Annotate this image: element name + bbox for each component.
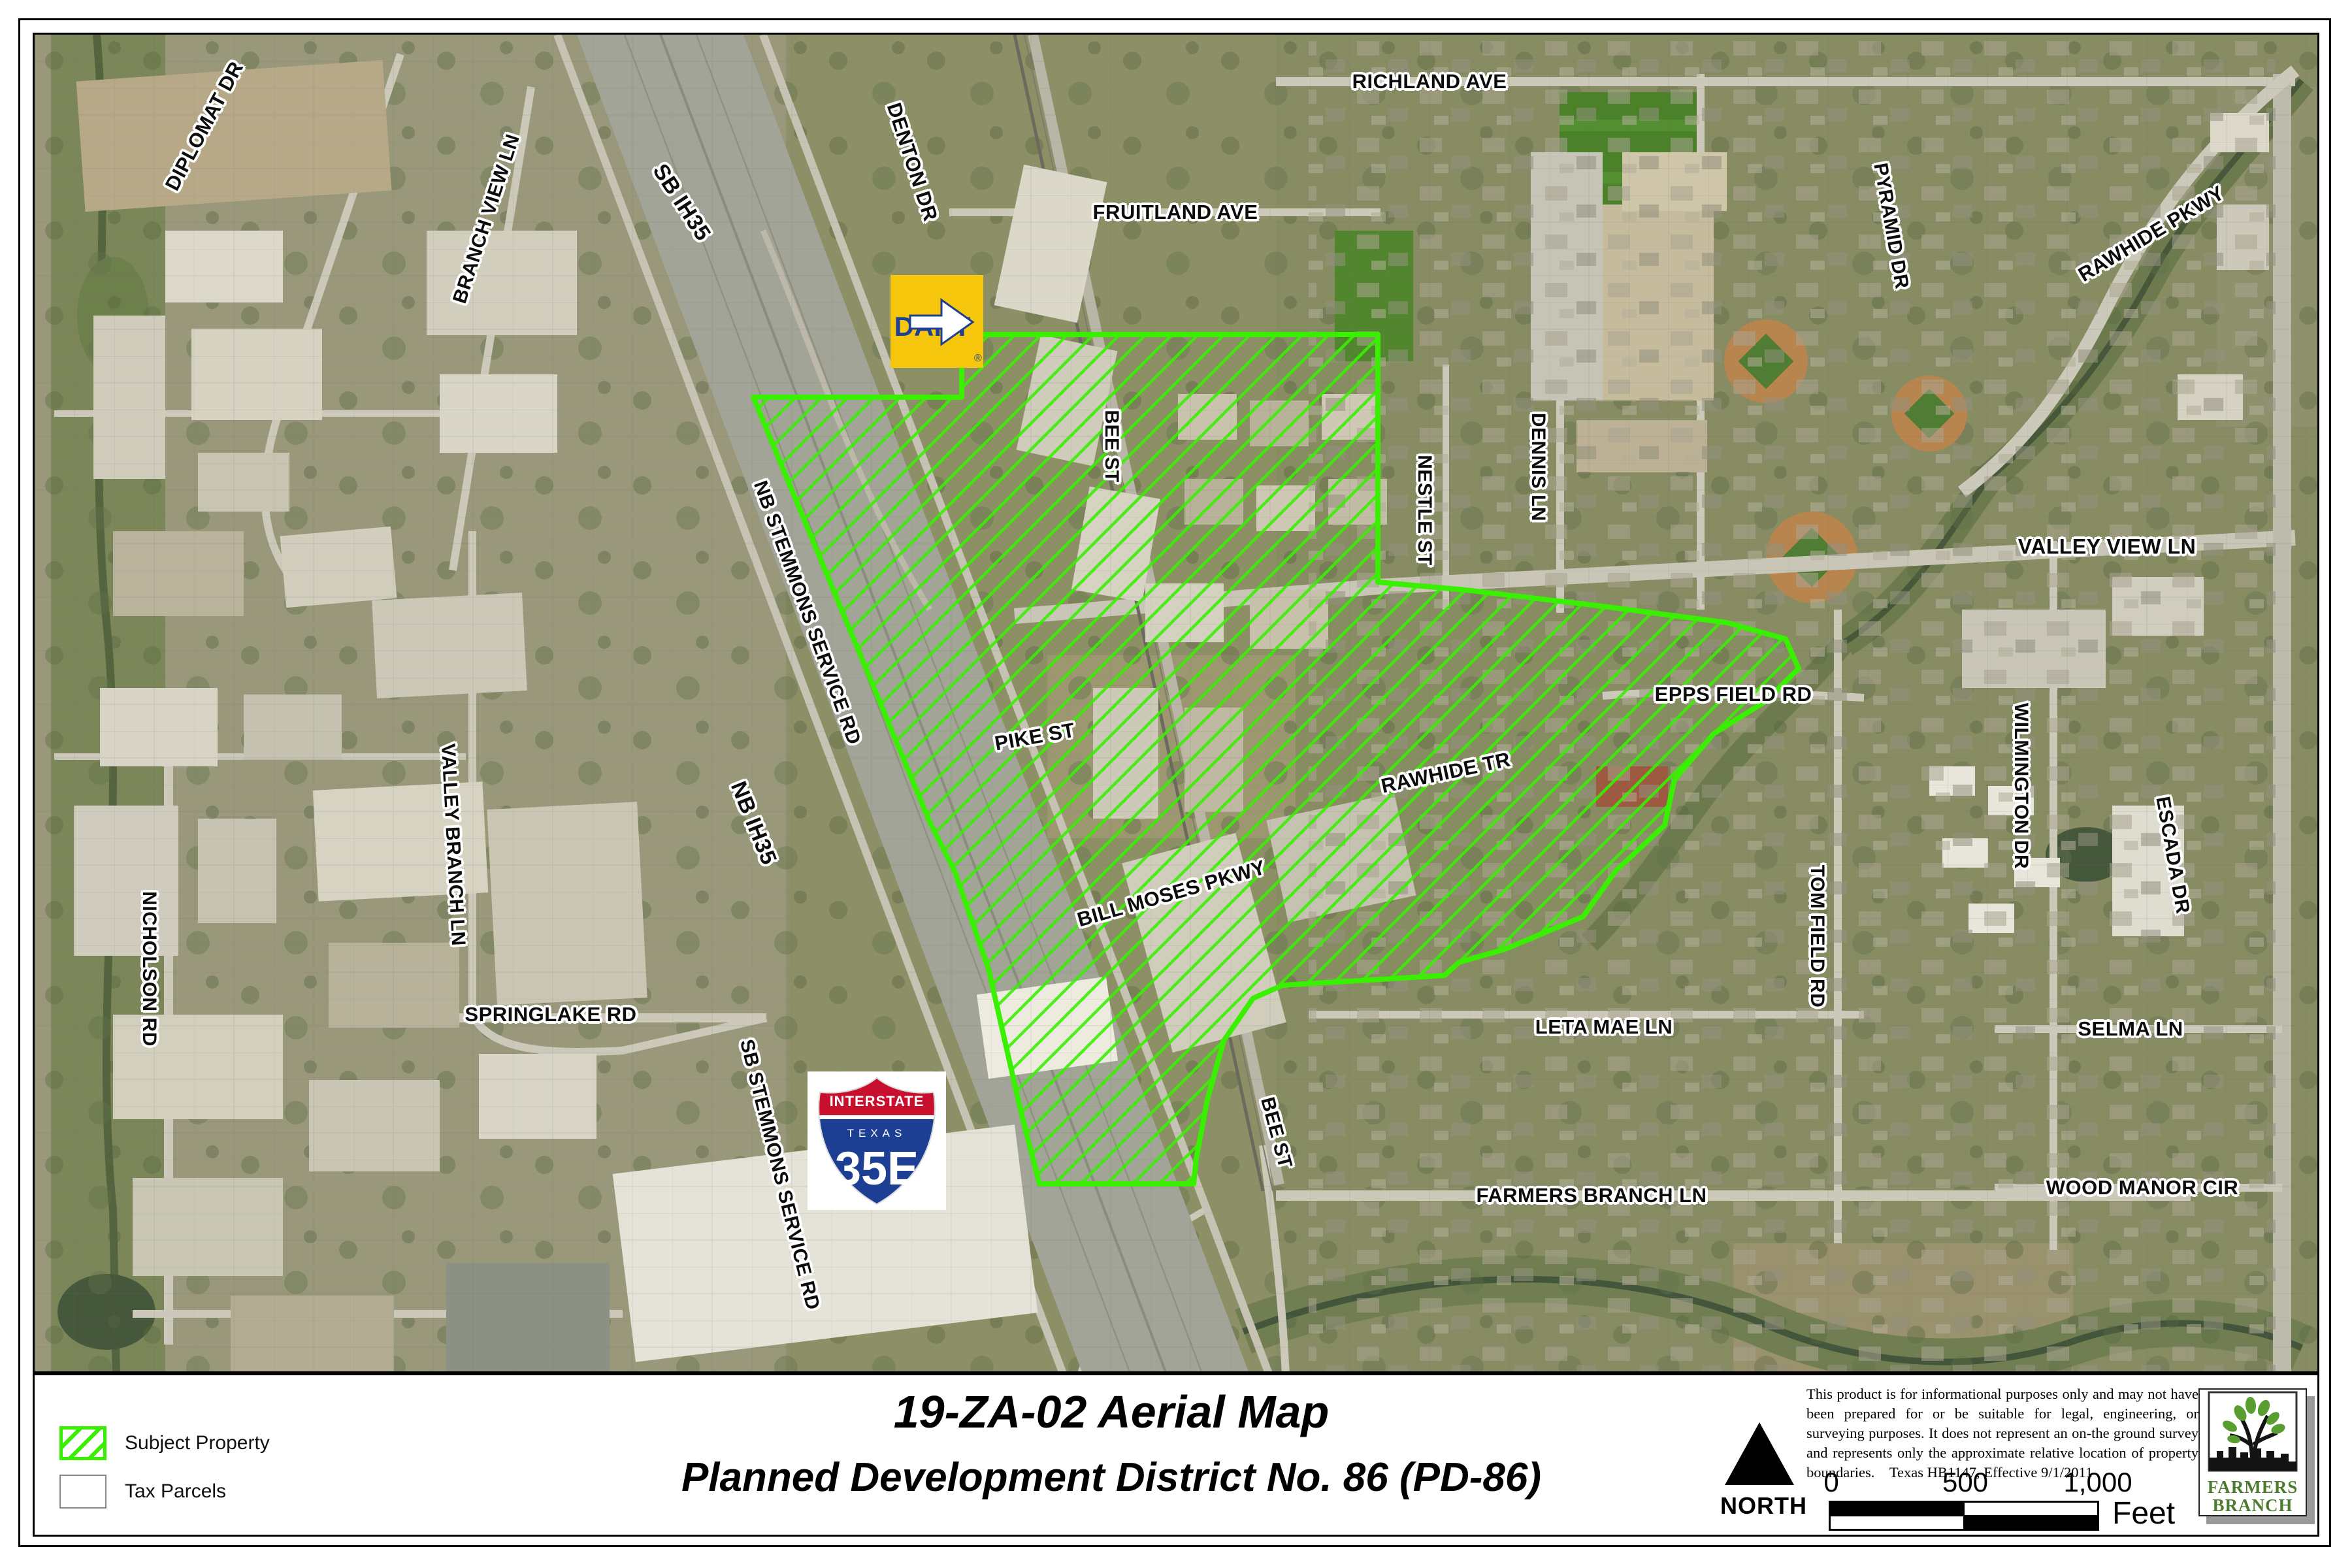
street-label: NB STEMMONS SERVICE RD [749, 478, 865, 747]
north-label: NORTH [1720, 1492, 1799, 1520]
title-block: 19-ZA-02 Aerial Map Planned Development … [327, 1387, 1895, 1501]
aerial-map: DART ® INTERSTATE TEXAS 35E DIPLOMAT DRB… [33, 33, 2319, 1373]
farmers-branch-logo: FARMERS BRANCH [2198, 1388, 2315, 1524]
street-label: WOOD MANOR CIR [2046, 1176, 2239, 1200]
street-label: RAWHIDE PKWY [2074, 181, 2229, 287]
street-label: DENTON DR [882, 100, 942, 224]
street-label: WILMINGTON DR [2010, 703, 2032, 869]
street-label: DENNIS LN [1527, 413, 1549, 521]
map-collar-panel: Subject Property Tax Parcels 19-ZA-02 Ae… [33, 1373, 2319, 1537]
street-label: PIKE ST [993, 718, 1077, 755]
street-label: RICHLAND AVE [1352, 70, 1507, 93]
street-label: ESCADA DR [2151, 795, 2193, 916]
street-label: BRANCH VIEW LN [449, 131, 525, 306]
street-label: DIPLOMAT DR [161, 57, 248, 195]
street-label: EPPS FIELD RD [1655, 683, 1812, 706]
street-label: SPRINGLAKE RD [465, 1003, 636, 1026]
street-label: FRUITLAND AVE [1093, 201, 1258, 224]
legend-label: Tax Parcels [125, 1480, 226, 1503]
street-label: NESTLE ST [1413, 455, 1435, 566]
scale-tick: 0 [1823, 1467, 1838, 1498]
scale-bar: 0 500 1,000 Feet [1810, 1467, 2215, 1532]
street-label: BEE ST [1100, 410, 1122, 482]
scale-tick: 1,000 [2063, 1467, 2132, 1498]
street-label: SB STEMMONS SERVICE RD [735, 1037, 824, 1312]
tax-parcels-swatch [59, 1475, 106, 1509]
legend-item-tax-parcels: Tax Parcels [59, 1475, 270, 1509]
subject-property-swatch [59, 1426, 106, 1460]
street-label: PYRAMID DR [1869, 161, 1912, 291]
street-labels-layer: DIPLOMAT DRBRANCH VIEW LNSB IH35DENTON D… [35, 35, 2317, 1371]
scale-tick: 500 [1942, 1467, 1988, 1498]
scale-ticks: 0 500 1,000 [1810, 1467, 2215, 1497]
scale-unit: Feet [2112, 1495, 2175, 1531]
street-label: NB IH35 [725, 778, 781, 869]
street-label: VALLEY BRANCH LN [436, 743, 469, 947]
street-label: SB IH35 [647, 159, 716, 246]
street-label: TOM FIELD RD [1806, 865, 1828, 1008]
street-label: BILL MOSES PKWY [1075, 856, 1268, 932]
legend-item-subject-property: Subject Property [59, 1426, 270, 1460]
farmers-branch-name: FARMERS BRANCH [2200, 1478, 2306, 1515]
street-label: LETA MAE LN [1535, 1015, 1673, 1039]
street-label: SELMA LN [2078, 1017, 2183, 1041]
north-arrow: NORTH [1720, 1421, 1799, 1520]
map-subtitle: Planned Development District No. 86 (PD-… [327, 1454, 1895, 1501]
street-label: RAWHIDE TR [1379, 747, 1512, 798]
street-label: VALLEY VIEW LN [2018, 535, 2197, 559]
north-arrow-icon [1723, 1421, 1795, 1486]
street-label: NICHOLSON RD [138, 891, 160, 1047]
farmers-branch-tree-icon [2204, 1390, 2302, 1473]
legend-label: Subject Property [125, 1432, 270, 1454]
scale-bar-boxes [1829, 1501, 2099, 1531]
map-title: 19-ZA-02 Aerial Map [327, 1387, 1895, 1437]
legend: Subject Property Tax Parcels [59, 1426, 270, 1523]
street-label: FARMERS BRANCH LN [1477, 1184, 1707, 1207]
street-label: BEE ST [1256, 1095, 1296, 1171]
